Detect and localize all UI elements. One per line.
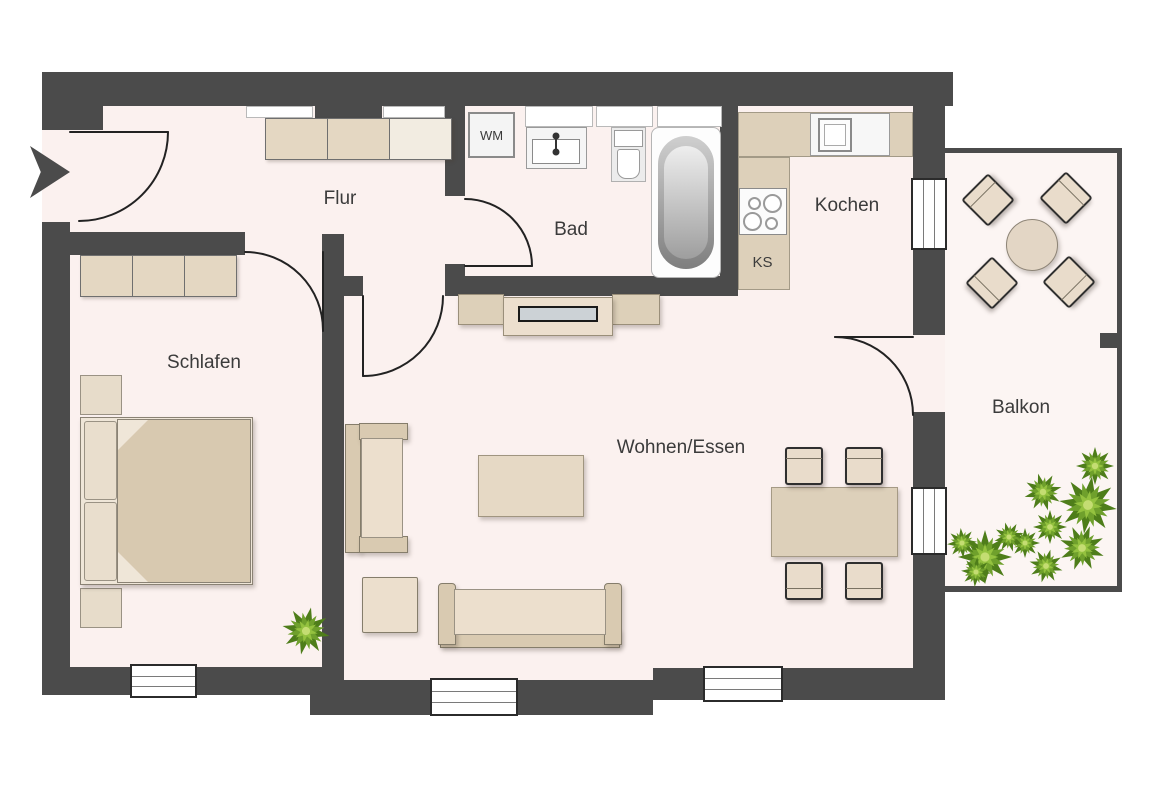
room-label-wohnen-essen: Wohnen/Essen	[591, 437, 771, 459]
balcony-wall	[945, 148, 1122, 153]
closet-section	[327, 118, 390, 160]
stove-burner	[748, 197, 761, 210]
bedroom-closet	[80, 255, 237, 297]
stove-burner	[743, 212, 762, 231]
coffee-table	[478, 455, 584, 517]
balcony-floor	[945, 153, 1117, 586]
balcony-table	[1006, 219, 1058, 271]
wall-segment	[913, 250, 945, 335]
wall-segment	[445, 276, 738, 296]
dining-table	[771, 487, 898, 557]
nightstand	[80, 588, 122, 628]
sofa-seat	[454, 589, 606, 635]
balcony-door-gap-floor	[913, 335, 945, 412]
wall-segment	[913, 412, 945, 487]
dining-chair	[785, 447, 823, 485]
room-label-flur: Flur	[280, 188, 400, 210]
wall-segment	[42, 222, 70, 695]
stove-burner	[765, 217, 778, 230]
closet-section	[389, 118, 452, 160]
room-label-balkon: Balkon	[961, 397, 1081, 419]
fridge-label: KS	[735, 254, 790, 271]
high-window	[383, 106, 445, 118]
wall-segment	[322, 234, 344, 695]
tv-sideboard	[458, 294, 504, 325]
bathroom-sink-basin	[532, 139, 580, 164]
wall-segment	[913, 106, 945, 178]
room-label-schlafen: Schlafen	[144, 352, 264, 374]
washing-machine-label: WM	[468, 128, 515, 143]
floor-plan: Flur Schlafen Bad Kochen Wohnen/Essen Ba…	[0, 0, 1170, 785]
bathtub	[651, 127, 721, 278]
toilet-bowl	[617, 149, 640, 179]
wall-segment	[42, 72, 953, 106]
kitchen-sink-basin	[824, 124, 846, 146]
closet-section	[184, 255, 237, 297]
nightstand	[80, 375, 122, 415]
bathtub-inner	[664, 146, 708, 259]
bed-blanket	[117, 419, 251, 583]
armchair-armrest	[359, 536, 408, 553]
sofa-armrest	[604, 583, 622, 645]
closet-section	[265, 118, 328, 160]
bed-pillow	[84, 502, 117, 581]
window	[911, 487, 947, 555]
wall-segment	[70, 232, 245, 255]
balcony-wall	[1117, 148, 1122, 592]
room-label-bad: Bad	[531, 219, 611, 241]
room-label-kochen: Kochen	[787, 195, 907, 217]
high-window	[596, 106, 653, 127]
stool	[362, 577, 418, 633]
window	[911, 178, 947, 250]
tv-screen	[518, 306, 598, 322]
window	[703, 666, 783, 702]
wall-segment	[653, 668, 945, 700]
armchair-back	[345, 424, 361, 553]
armchair-seat	[361, 438, 403, 538]
bed-pillow	[84, 421, 117, 500]
tv-sideboard	[612, 294, 660, 325]
window	[130, 664, 197, 698]
high-window	[525, 106, 593, 127]
window	[430, 678, 518, 716]
closet-section	[80, 255, 133, 297]
toilet-tank	[614, 130, 643, 147]
dining-chair	[845, 447, 883, 485]
balcony-wall-stub	[1100, 333, 1122, 348]
closet-section	[132, 255, 185, 297]
hall-closet	[265, 118, 452, 160]
high-window	[246, 106, 313, 118]
high-window	[657, 106, 722, 127]
stove-burner	[763, 194, 782, 213]
dining-chair	[785, 562, 823, 600]
dining-chair	[845, 562, 883, 600]
balcony-wall	[945, 586, 1122, 592]
wall-segment	[913, 555, 945, 700]
wall-segment	[344, 276, 363, 296]
